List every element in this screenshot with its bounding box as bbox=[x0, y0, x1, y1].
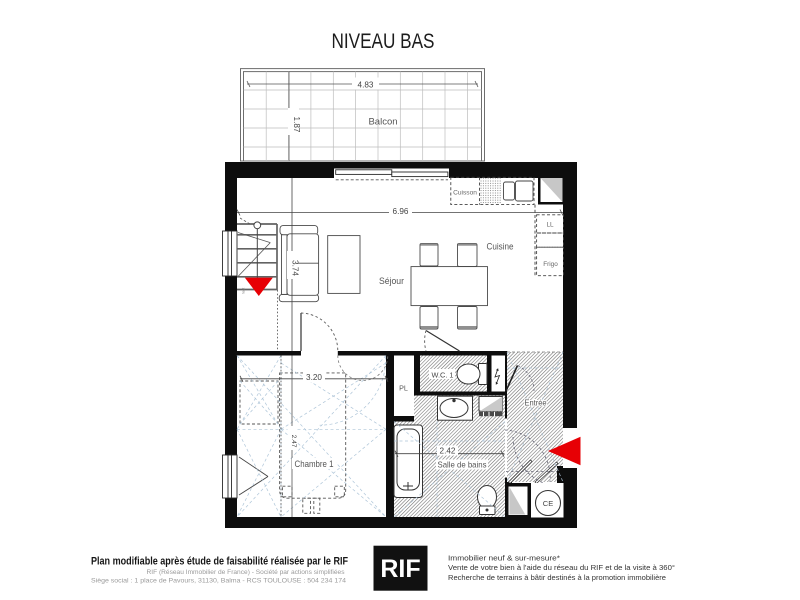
svg-text:2.42: 2.42 bbox=[440, 447, 456, 456]
svg-text:Salle de bains: Salle de bains bbox=[438, 460, 487, 470]
svg-text:haut: haut bbox=[242, 288, 246, 294]
svg-text:1.87: 1.87 bbox=[292, 117, 301, 133]
svg-text:Cuisine: Cuisine bbox=[487, 242, 514, 252]
svg-text:3.74: 3.74 bbox=[291, 260, 300, 276]
svg-text:Plan modifiable après étude de: Plan modifiable après étude de faisabili… bbox=[91, 556, 348, 568]
svg-text:W.C. 1: W.C. 1 bbox=[432, 371, 454, 380]
svg-text:2.47: 2.47 bbox=[290, 435, 297, 448]
svg-text:Siège social : 1 place de Pavo: Siège social : 1 place de Pavours, 31130… bbox=[91, 577, 346, 584]
svg-text:Vente de votre bien à l'aide d: Vente de votre bien à l'aide du réseau d… bbox=[448, 563, 675, 572]
svg-text:RIF (Réseau Immobilier de Fran: RIF (Réseau Immobilier de France) - Soci… bbox=[147, 569, 346, 576]
svg-text:Balcon: Balcon bbox=[368, 117, 397, 128]
svg-text:NIVEAU BAS: NIVEAU BAS bbox=[332, 30, 435, 53]
svg-text:4.83: 4.83 bbox=[358, 81, 374, 90]
svg-text:PL: PL bbox=[399, 384, 408, 393]
svg-text:Chambre 1: Chambre 1 bbox=[295, 459, 334, 469]
svg-text:CE: CE bbox=[543, 499, 553, 508]
svg-text:6.96: 6.96 bbox=[393, 207, 409, 216]
svg-text:LL: LL bbox=[546, 222, 554, 229]
svg-text:RIF: RIF bbox=[380, 555, 420, 583]
svg-text:Frigo: Frigo bbox=[543, 261, 558, 268]
svg-text:Recherche de terrains à bâtir: Recherche de terrains à bâtir destinés à… bbox=[448, 573, 666, 582]
svg-text:Séjour: Séjour bbox=[379, 276, 404, 286]
svg-text:Entrée: Entrée bbox=[525, 398, 547, 408]
svg-text:3.20: 3.20 bbox=[306, 373, 322, 382]
svg-text:Immobilier neuf & sur-mesure*: Immobilier neuf & sur-mesure* bbox=[448, 554, 560, 563]
svg-text:Cuisson: Cuisson bbox=[453, 190, 477, 197]
